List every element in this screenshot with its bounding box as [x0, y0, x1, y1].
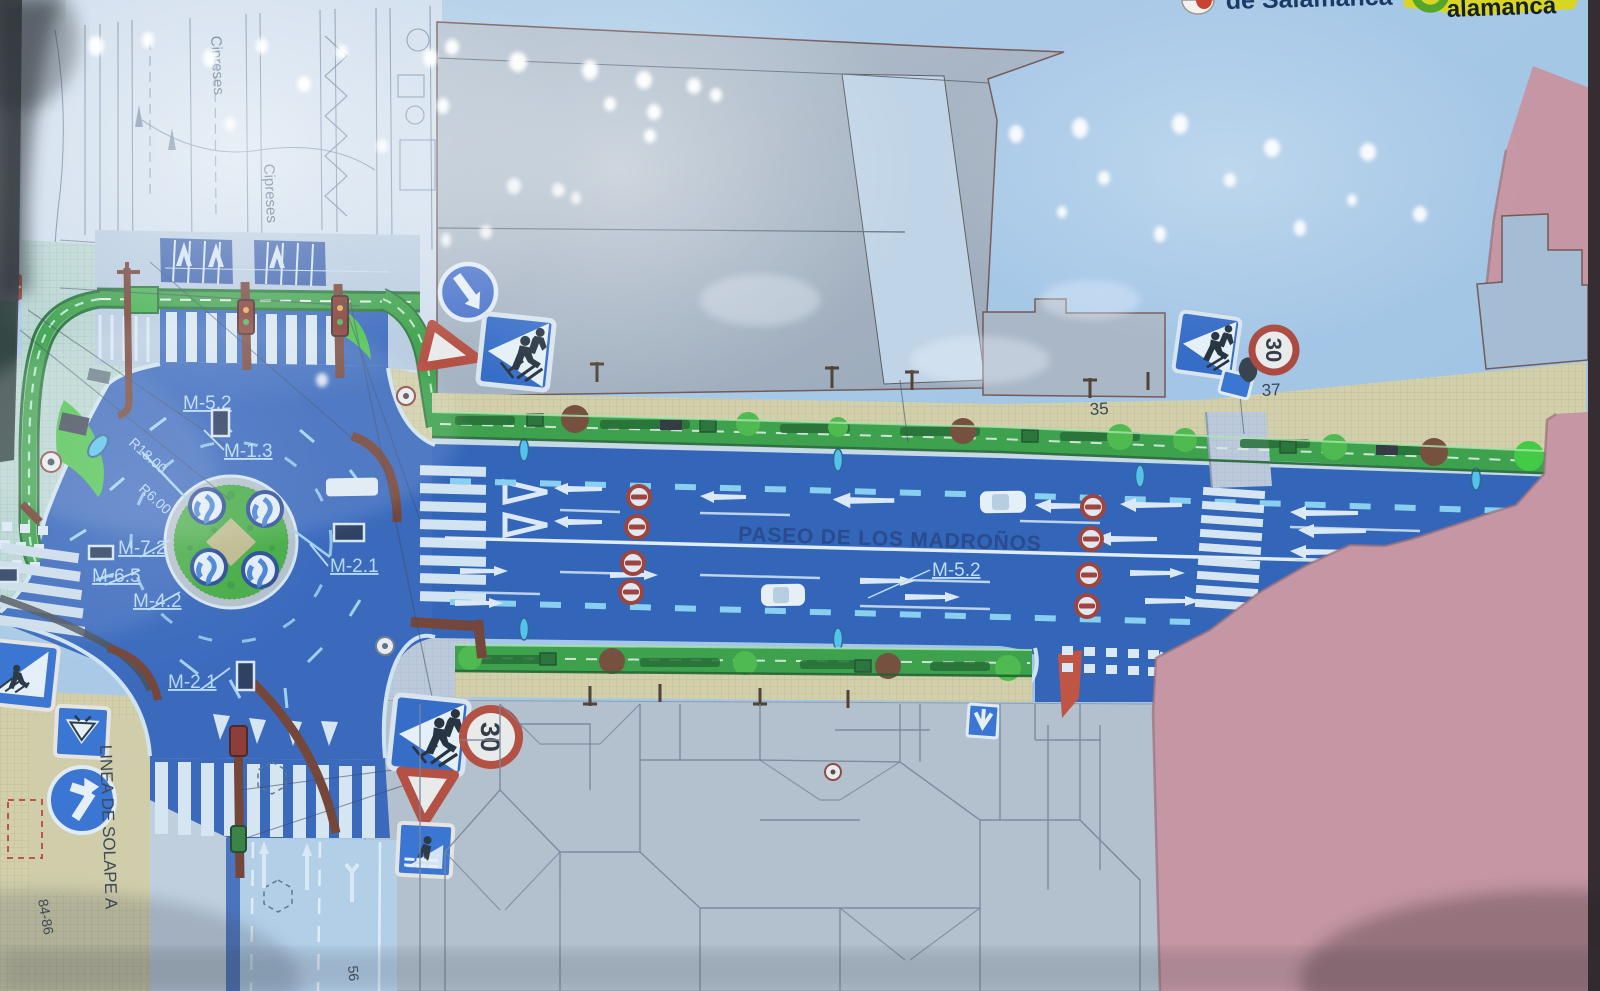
svg-text:alamanca: alamanca: [1446, 0, 1557, 23]
